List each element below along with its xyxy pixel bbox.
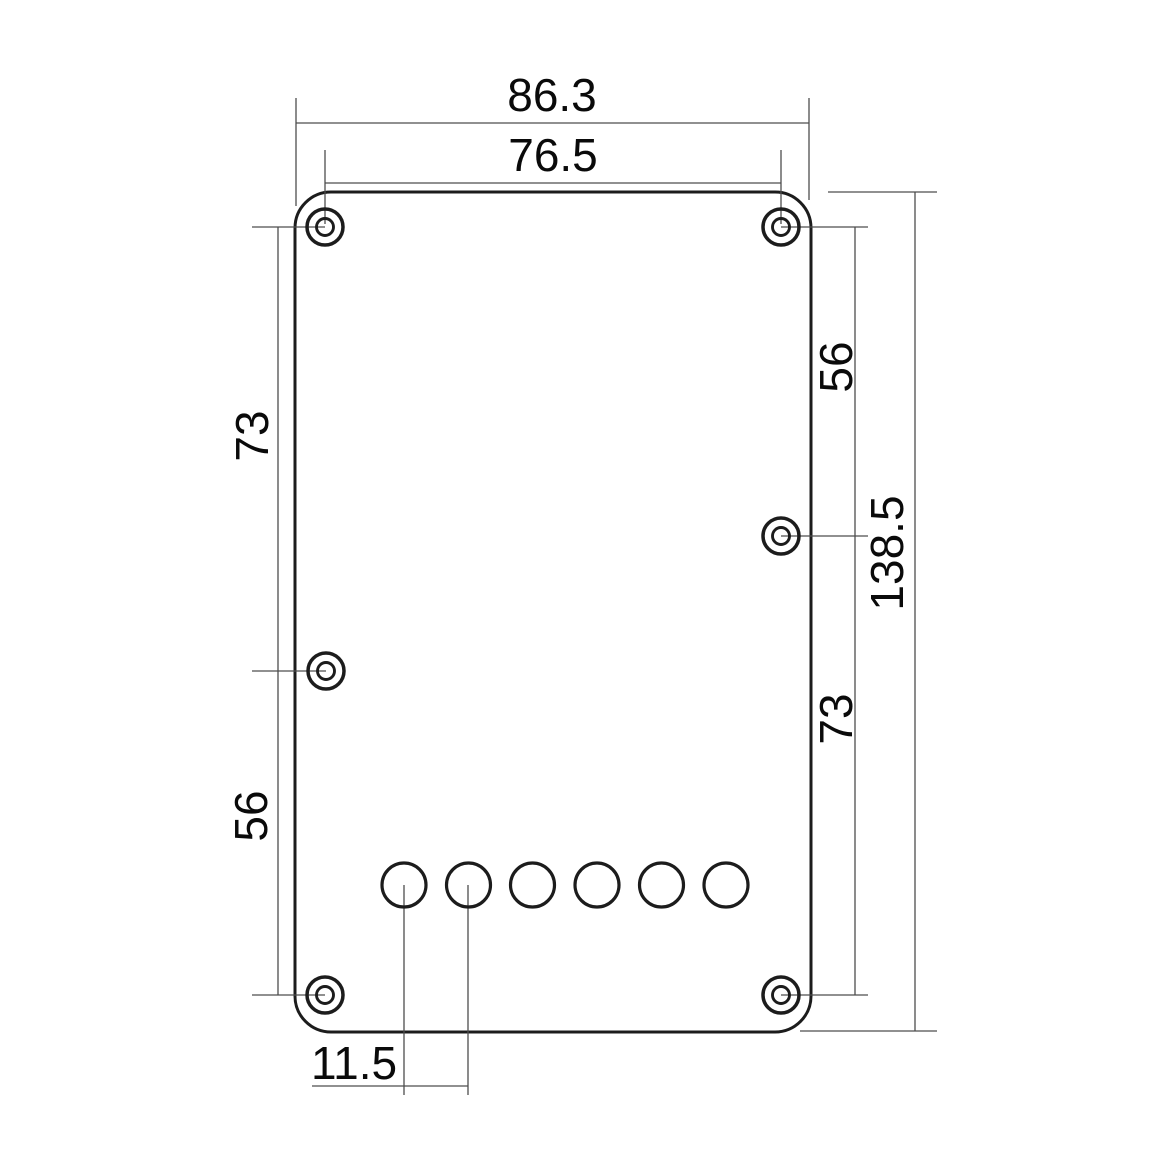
dim-overall-height: 138.5 [800,192,937,1031]
drawing-canvas: 86.3 76.5 73 56 56 73 [0,0,1160,1160]
dim-label-top-hole-span: 76.5 [508,129,598,181]
dim-label-overall-width: 86.3 [507,69,597,121]
dim-label-left-upper: 73 [226,410,278,461]
backplate-technical-drawing: 86.3 76.5 73 56 56 73 [0,0,1160,1160]
dim-label-right-upper: 56 [810,341,862,392]
dim-label-left-lower: 56 [225,790,277,841]
dim-label-string-hole-pitch: 11.5 [311,1037,397,1089]
dim-label-right-lower: 73 [810,693,862,744]
dim-label-overall-height: 138.5 [861,495,913,610]
